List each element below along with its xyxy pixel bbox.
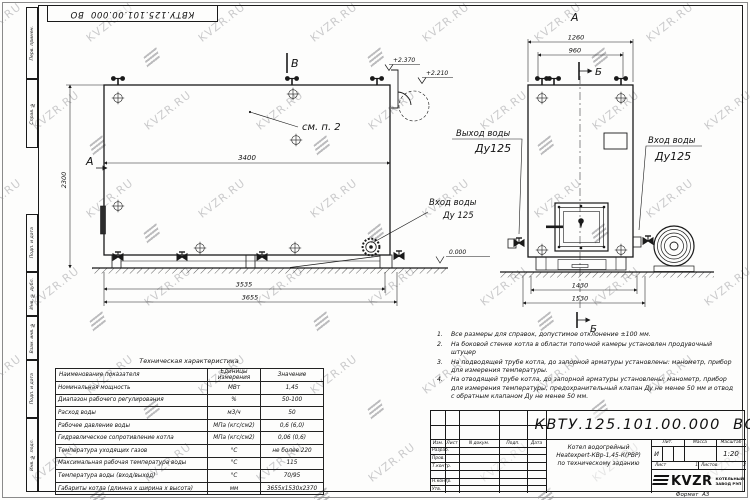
dim-3400: 3400 xyxy=(238,154,256,162)
lit-header: Лит. xyxy=(651,439,684,446)
note-text: Все размеры для справок, допустимое откл… xyxy=(451,331,651,339)
top-stamp-doc-number: КВТУ.125.101.00.000 ВО xyxy=(70,9,194,19)
row-units: МВт xyxy=(208,382,261,395)
dim-1260: 1260 xyxy=(568,34,585,42)
dim-1430: 1430 xyxy=(572,282,589,290)
role-tkontr: Т.контр. xyxy=(432,462,459,470)
dim-3535: 3535 xyxy=(236,281,253,289)
table-row: Максимальная рабочая температура воды°С1… xyxy=(56,457,324,470)
dim-2300: 2300 xyxy=(60,172,68,189)
row-value: 1,45 xyxy=(261,382,324,395)
format-label: Формат А3 xyxy=(640,492,745,498)
table-row: Номинальная мощностьМВт1,45 xyxy=(56,382,324,395)
margin-box-repl-inv: Взам. инв. № xyxy=(26,316,38,360)
kvzr-logo-mark xyxy=(652,475,670,487)
doc-number: КВТУ.125.101.00.000 ВО xyxy=(546,411,746,439)
row-value: 50 xyxy=(261,407,324,420)
note-item: 2.На боковой стенке котла в области топо… xyxy=(437,341,738,357)
descr-line2: Heatexpert-КВр-1,45-К(РВР) xyxy=(556,453,641,461)
sheets-value: 2 xyxy=(743,463,746,468)
elev-0000: 0.000 xyxy=(449,249,466,256)
col-ndoc: N докум. xyxy=(459,439,499,447)
tech-characteristics: Техническая характеристика Наименование … xyxy=(55,357,323,495)
furnace-door xyxy=(546,203,608,251)
blower-fan xyxy=(654,226,694,272)
note-item: 4.На отводящей трубе котла, до запорной … xyxy=(437,376,738,401)
company-name-line2: ЗАВОД РЭП xyxy=(716,481,745,486)
row-units: мм xyxy=(208,482,261,495)
table-row: Температура уходящих газов°Сне более 220 xyxy=(56,444,324,457)
row-value: 0,06 (0,6) xyxy=(261,432,324,445)
elev-2370: +2.370 xyxy=(393,57,415,64)
row-value: 3655х1530х2370 xyxy=(261,482,324,495)
sheets-cell: Листов 2 xyxy=(701,461,750,469)
front-view: А xyxy=(452,11,714,335)
outlet-dn: Ду125 xyxy=(474,142,511,155)
scale-header: Масштаб xyxy=(716,439,746,446)
front-inlet-label: Вход воды xyxy=(648,136,696,146)
inspection-window xyxy=(604,133,627,149)
company-name: КОТЕЛЬНЫЙ ЗАВОД РЭП xyxy=(716,476,745,486)
note-text: На отводящей трубе котла, до запорной ар… xyxy=(451,376,738,401)
top-stamp: КВТУ.125.101.00.000 ВО xyxy=(47,5,218,22)
table-row: Диапазон рабочего регулирования%50-100 xyxy=(56,394,324,407)
margin-box-sign-date: Подп. и дата xyxy=(26,214,38,272)
sheet-label: Лист xyxy=(655,463,666,468)
note-number: 2. xyxy=(437,341,451,357)
margin-box-sign-date-2: Подп. и дата xyxy=(26,360,38,418)
note-number: 3. xyxy=(437,359,451,375)
dim-960: 960 xyxy=(569,47,581,55)
table-row: Расход водым3/ч50 xyxy=(56,407,324,420)
row-value: 70/95 xyxy=(261,470,324,483)
tech-table: Наименование показателя Единицыизмерения… xyxy=(55,368,324,495)
descr-line3: по техническому заданию xyxy=(558,461,640,469)
row-name: Гидравлическое сопротивление котла xyxy=(56,432,208,445)
note-text: На подводящей трубе котла, до запорной а… xyxy=(451,359,738,375)
tech-table-header: Наименование показателя Единицыизмерения… xyxy=(56,369,324,382)
row-units: МПа (кгс/см2) xyxy=(208,432,261,445)
row-name: Расход воды xyxy=(56,407,208,420)
row-name: Номинальная мощность xyxy=(56,382,208,395)
row-units: °С xyxy=(208,457,261,470)
row-name: Рабочее давление воды xyxy=(56,419,208,432)
note-text: На боковой стенке котла в области топочн… xyxy=(451,341,738,357)
row-name: Температура воды (вход/выход) xyxy=(56,470,208,483)
view-label-a: А xyxy=(85,155,94,168)
row-value: не более 220 xyxy=(261,444,324,457)
table-row: Рабочее давление водыМПа (кгс/см2)0,6 (6… xyxy=(56,419,324,432)
col-name-header: Наименование показателя xyxy=(56,369,208,382)
margin-box-first-use: Перв. примен. xyxy=(26,7,38,79)
col-value-header: Значение xyxy=(261,369,324,382)
boiler-body-front xyxy=(528,85,633,257)
row-name: Габариты котла (длинна х ширина х высота… xyxy=(56,482,208,495)
row-name: Температура уходящих газов xyxy=(56,444,208,457)
kvzr-logo-text: KVZR xyxy=(671,474,713,489)
sheets-label: Листов xyxy=(701,463,717,468)
view-label-v: В xyxy=(291,57,299,70)
lit-value: И xyxy=(651,446,662,461)
col-podp: Подп. xyxy=(499,439,527,447)
callout-see-item-2: см. п. 2 xyxy=(302,122,341,133)
margin-label: Инв. № подл. xyxy=(30,439,35,471)
section-b-top: Б xyxy=(595,67,602,78)
sheet-cell: Лист 1 xyxy=(655,461,706,469)
flue-stub xyxy=(391,70,398,108)
row-units: м3/ч xyxy=(208,407,261,420)
margin-box-inv-dupl: Инв. № дубл. xyxy=(26,272,38,316)
side-hatch-panel xyxy=(101,206,106,234)
product-description: Котел водогрейный Heatexpert-КВр-1,45-К(… xyxy=(546,440,651,474)
table-row: Габариты котла (длинна х ширина х высота… xyxy=(56,482,324,495)
note-item: 3.На подводящей трубе котла, до запорной… xyxy=(437,359,738,375)
side-inlet-dn: Ду 125 xyxy=(442,211,474,221)
row-name: Максимальная рабочая температура воды xyxy=(56,457,208,470)
outlet-label: Выход воды xyxy=(456,129,510,139)
sheet-value: 1 xyxy=(695,463,698,468)
row-units: °С xyxy=(208,444,261,457)
company-cell: KVZR КОТЕЛЬНЫЙ ЗАВОД РЭП xyxy=(651,469,746,493)
margin-label: Инв. № дубл. xyxy=(30,278,35,310)
front-inlet-dn: Ду125 xyxy=(654,150,691,163)
note-item: 1.Все размеры для справок, допустимое от… xyxy=(437,331,738,339)
row-value: 115 xyxy=(261,457,324,470)
boiler-body-side xyxy=(104,85,390,255)
margin-label: Перв. примен. xyxy=(30,26,35,61)
table-row: Температура воды (вход/выход)°С70/95 xyxy=(56,470,324,483)
detail-circle xyxy=(399,91,429,121)
margin-box-ref-no: Справ. № xyxy=(26,79,38,148)
margin-label: Справ. № xyxy=(30,102,35,125)
margin-label: Подп. и дата xyxy=(30,227,35,258)
row-units: % xyxy=(208,394,261,407)
row-units: °С xyxy=(208,470,261,483)
scale-value: 1:20 xyxy=(716,446,746,461)
tech-table-title: Техническая характеристика xyxy=(55,357,323,368)
dim-1530: 1530 xyxy=(572,295,589,303)
note-number: 1. xyxy=(437,331,451,339)
boiler-drawing: 3400 2300 3535 3655 А В см. п. 2 +2.370 xyxy=(38,0,745,355)
notes-list: 1.Все размеры для справок, допустимое от… xyxy=(437,331,738,403)
note-number: 4. xyxy=(437,376,451,401)
row-units: МПа (кгс/см2) xyxy=(208,419,261,432)
title-block: Изм. Лист N докум. Подп. Дата Разраб. Пр… xyxy=(430,410,745,492)
side-inlet-label: Вход воды xyxy=(429,198,477,208)
side-view: 3400 2300 3535 3655 А В см. п. 2 +2.370 xyxy=(60,53,490,306)
elev-2210: +2.210 xyxy=(426,70,448,77)
col-data: Дата xyxy=(527,439,546,447)
inlet-flange xyxy=(363,239,380,256)
margin-label: Взам. инв. № xyxy=(30,322,35,353)
dim-3655: 3655 xyxy=(242,294,259,302)
drawing-sheet: KVZR.RUKVZR.RUKVZR.RUKVZR.RUKVZR.RUKVZR.… xyxy=(0,0,750,500)
col-units-header: Единицыизмерения xyxy=(208,369,261,382)
mass-header: Масса xyxy=(684,439,716,446)
row-name: Диапазон рабочего регулирования xyxy=(56,394,208,407)
row-value: 0,6 (6,0) xyxy=(261,419,324,432)
row-value: 50-100 xyxy=(261,394,324,407)
role-utv: Утв. xyxy=(432,485,459,493)
margin-label: Подп. и дата xyxy=(30,373,35,404)
front-view-label-a: А xyxy=(570,11,579,24)
table-row: Гидравлическое сопротивление котлаМПа (к… xyxy=(56,432,324,445)
margin-box-inv-orig: Инв. № подл. xyxy=(26,418,38,492)
descr-line1: Котел водогрейный xyxy=(568,445,630,453)
